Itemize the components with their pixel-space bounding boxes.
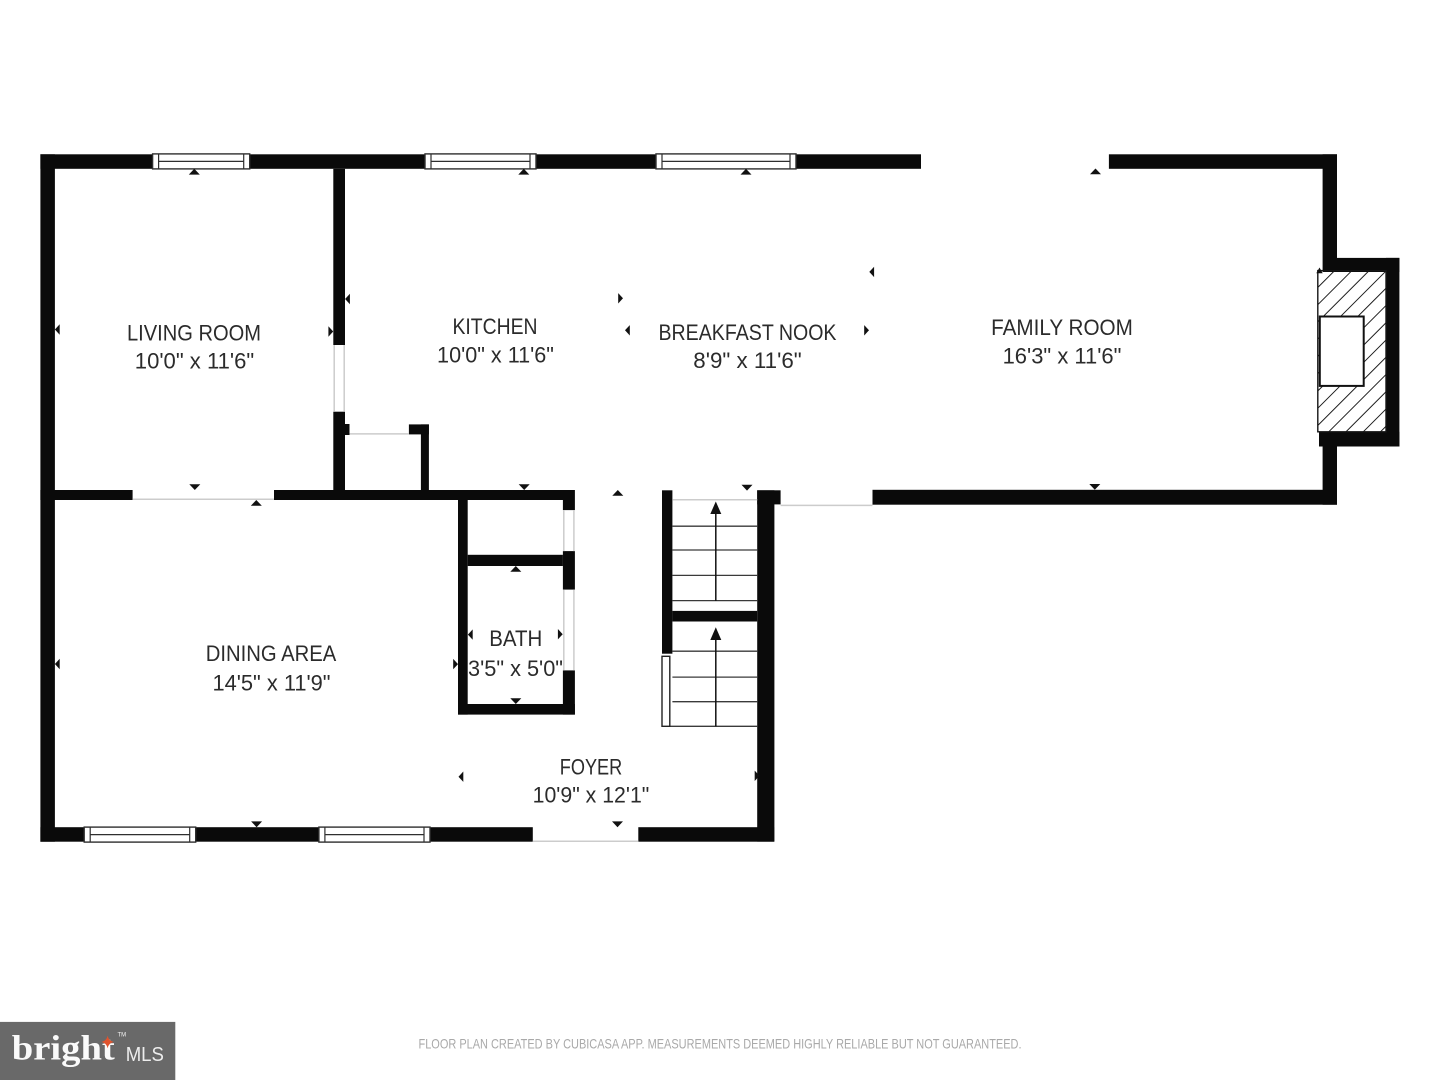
svg-text:KITCHEN: KITCHEN <box>453 314 538 339</box>
svg-text:16'3" x 11'6": 16'3" x 11'6" <box>1003 343 1122 368</box>
svg-text:LIVING ROOM: LIVING ROOM <box>127 321 261 346</box>
svg-text:10'9" x 12'1": 10'9" x 12'1" <box>533 783 650 808</box>
svg-text:10'0" x 11'6": 10'0" x 11'6" <box>437 343 554 368</box>
svg-text:TM: TM <box>118 1033 127 1039</box>
svg-text:BREAKFAST NOOK: BREAKFAST NOOK <box>659 320 837 345</box>
svg-text:3'5" x 5'0": 3'5" x 5'0" <box>468 656 563 681</box>
svg-text:MLS: MLS <box>126 1044 164 1066</box>
svg-text:14'5" x 11'9": 14'5" x 11'9" <box>212 671 330 696</box>
svg-text:bright: bright <box>12 1028 115 1067</box>
svg-text:8'9" x 11'6": 8'9" x 11'6" <box>693 348 801 373</box>
svg-text:10'0" x 11'6": 10'0" x 11'6" <box>135 348 254 373</box>
svg-text:FAMILY ROOM: FAMILY ROOM <box>991 315 1133 340</box>
svg-text:FLOOR PLAN CREATED BY CUBICASA: FLOOR PLAN CREATED BY CUBICASA APP. MEAS… <box>419 1037 1022 1052</box>
svg-text:FOYER: FOYER <box>560 755 623 780</box>
svg-text:DINING AREA: DINING AREA <box>206 641 337 666</box>
svg-text:BATH: BATH <box>489 626 542 651</box>
